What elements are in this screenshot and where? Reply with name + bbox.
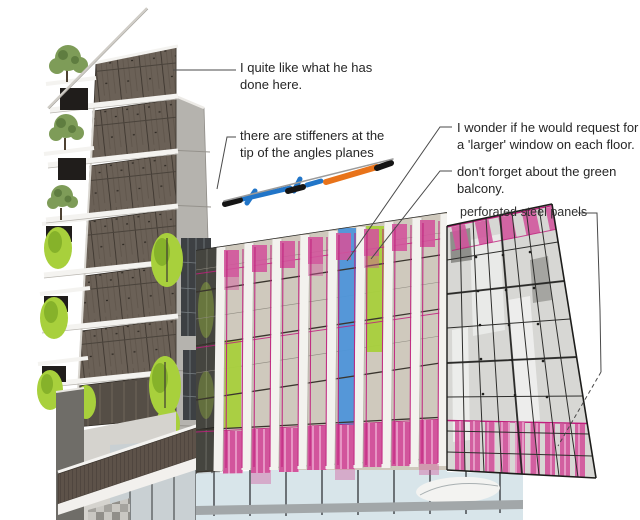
annotation-line: don't forget about the green <box>457 163 640 180</box>
annotation-perforated-steel-label: perforated steel panels <box>460 204 587 221</box>
annotation-like-comment: I quite like what he has done here. <box>240 59 415 93</box>
annotation-line: I quite like what he has <box>240 59 415 76</box>
architectural-review-sketch: I quite like what he has done here. ther… <box>0 0 640 520</box>
annotation-line: there are stiffeners at the <box>240 127 420 144</box>
annotation-window-question: I wonder if he would request for a 'larg… <box>457 119 640 153</box>
annotation-line: balcony. <box>457 180 640 197</box>
stiffener-sketch-detail <box>224 159 393 204</box>
balcony-trees <box>47 45 88 220</box>
left-tower <box>37 8 220 520</box>
annotation-balcony-reminder: don't forget about the green balcony. <box>457 163 640 197</box>
annotation-line: perforated steel panels <box>460 204 587 221</box>
annotation-line: done here. <box>240 76 415 93</box>
annotation-stiffeners-note: there are stiffeners at the tip of the a… <box>240 127 420 161</box>
right-glass-building <box>447 204 596 479</box>
annotation-line: tip of the angles planes <box>240 144 420 161</box>
central-facade <box>196 212 450 484</box>
annotation-line: a 'larger' window on each floor. <box>457 136 640 153</box>
annotation-line: I wonder if he would request for <box>457 119 640 136</box>
